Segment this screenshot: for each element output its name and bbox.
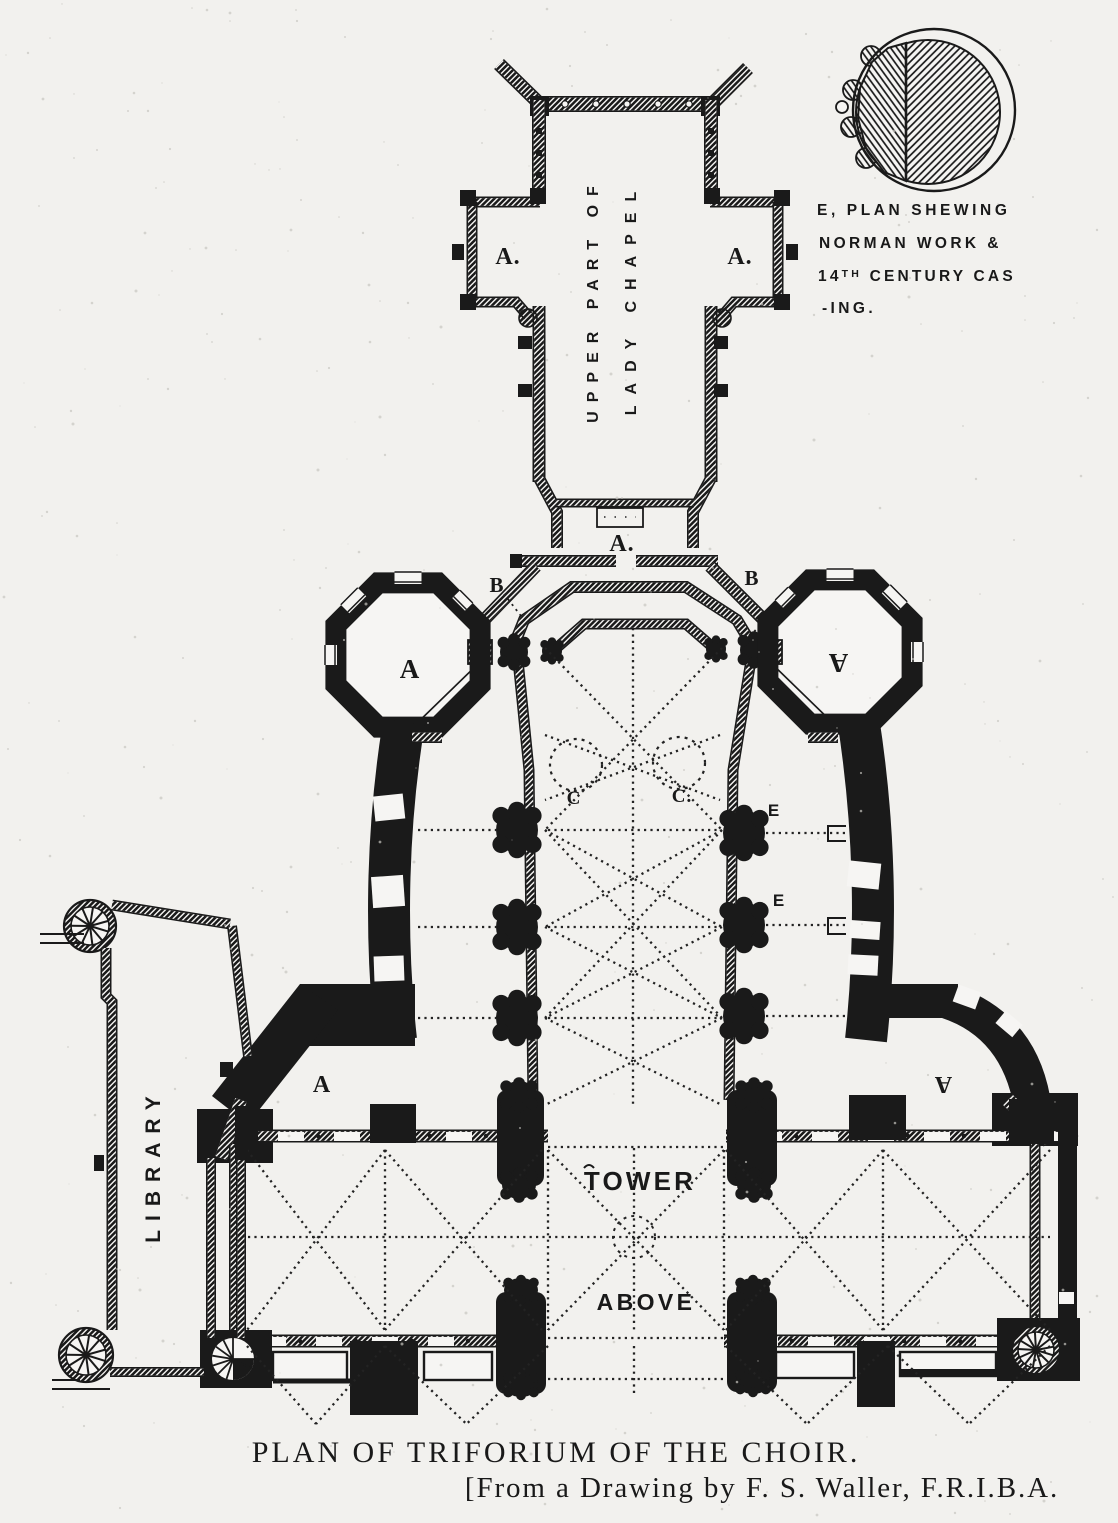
svg-text:B: B <box>489 573 504 597</box>
svg-text:-ING.: -ING. <box>822 300 876 317</box>
svg-text:A.: A. <box>727 244 752 270</box>
svg-text:A: A <box>828 648 849 678</box>
svg-text:B: B <box>744 566 759 590</box>
svg-text:A: A <box>934 1071 952 1097</box>
svg-text:[From a Drawing by F. S. Walle: [From a Drawing by F. S. Waller, F.R.I.B… <box>465 1472 1059 1504</box>
svg-text:C.: C. <box>672 786 692 807</box>
svg-text:A.: A. <box>495 244 520 270</box>
svg-text:E: E <box>768 801 780 820</box>
svg-text:A: A <box>313 1072 331 1098</box>
svg-text:LIBRARY: LIBRARY <box>142 1087 165 1243</box>
svg-text:PLAN OF TRIFORIUM OF THE CHOIR: PLAN OF TRIFORIUM OF THE CHOIR. <box>252 1436 861 1469</box>
svg-text:TOWER: TOWER <box>584 1166 696 1196</box>
svg-text:ABOVE: ABOVE <box>597 1289 696 1315</box>
svg-text:C: C <box>567 788 582 809</box>
svg-text:UPPER PART OF: UPPER PART OF <box>585 177 602 423</box>
svg-text:E, PLAN SHEWING: E, PLAN SHEWING <box>817 202 1011 219</box>
svg-text:A.: A. <box>609 531 634 557</box>
svg-text:NORMAN WORK &: NORMAN WORK & <box>819 235 1002 252</box>
svg-text:E: E <box>773 891 785 910</box>
svg-text:A: A <box>400 654 421 684</box>
